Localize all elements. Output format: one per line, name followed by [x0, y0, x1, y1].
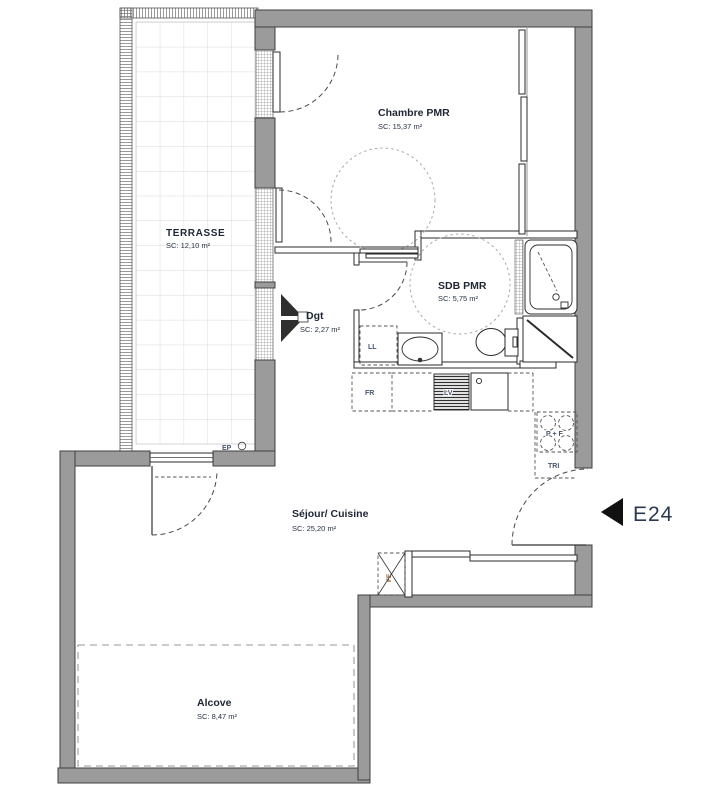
- bedroom-label: Chambre PMR: [378, 107, 450, 119]
- terrace-area: SC: 12,10 m²: [166, 241, 211, 250]
- living-area: SC: 25,20 m²: [292, 524, 337, 533]
- door-leaf-bedroom-2: [276, 188, 282, 242]
- alcove-label: Alcove: [197, 697, 232, 709]
- waste-sorting-label: TRI: [548, 463, 559, 470]
- kitchen-fixtures: [352, 373, 577, 478]
- left-triangle-marker-icon: [601, 498, 623, 526]
- door-swing-entry: [512, 469, 588, 545]
- hallway-area: SC: 2,27 m²: [300, 325, 341, 334]
- terrace-living-door: [150, 453, 217, 535]
- washbasin-tap-icon: [418, 358, 423, 363]
- floor-plan-drawing: E24 TERRASSE SC: 12,10 m² Chambre PMR SC…: [0, 0, 721, 800]
- bathroom-label: SDB PMR: [438, 280, 487, 292]
- ep-label: EP: [222, 445, 232, 452]
- sliding-door-rail: [360, 249, 418, 253]
- unit-label: E24: [633, 503, 673, 526]
- window-bedroom-2: [256, 188, 273, 282]
- floor-plan-canvas: E24 TERRASSE SC: 12,10 m² Chambre PMR SC…: [0, 0, 721, 800]
- washing-machine-box: [360, 326, 397, 365]
- hallway-label: Dgt: [306, 310, 324, 322]
- kitchen-sink: [471, 373, 508, 410]
- toilet-bowl: [476, 329, 506, 356]
- terrace-railing-top: [120, 8, 258, 18]
- bedroom-wardrobe: [519, 28, 527, 236]
- door-swing-terrace: [152, 470, 217, 535]
- sliding-door-leaf: [366, 254, 418, 258]
- terrace-label: TERRASSE: [166, 228, 225, 239]
- fridge-label: FR: [365, 390, 374, 397]
- door-leaf-bedroom-1: [273, 52, 280, 112]
- door-swing-bathroom: [359, 262, 407, 310]
- alcove-area: SC: 8,47 m²: [197, 712, 238, 721]
- bathtub: [525, 240, 577, 314]
- technical-duct-label: FE: [386, 573, 393, 582]
- dishwasher-label: LV: [444, 390, 453, 397]
- living-label: Séjour/ Cuisine: [292, 508, 369, 520]
- bathroom-area: SC: 5,75 m²: [438, 294, 479, 303]
- unit-marker: E24: [601, 498, 673, 526]
- hob-label: P + F: [546, 431, 564, 438]
- hob-burner-icon: [541, 416, 556, 431]
- washing-machine-label: LL: [368, 344, 377, 351]
- terrace-wall-openings: [256, 50, 338, 360]
- window-dgt: [256, 288, 273, 360]
- door-swing-bedroom-1: [280, 54, 338, 112]
- bedroom-area: SC: 15,37 m²: [378, 122, 423, 131]
- shower-screen: [515, 240, 523, 314]
- hob-burner-icon: [559, 416, 574, 431]
- entry-door: [512, 468, 592, 545]
- terrace-railing-left: [120, 8, 132, 451]
- door-swing-bedroom-2: [279, 190, 331, 242]
- window-bedroom-1: [256, 50, 273, 118]
- double-door-leaf-lower: [281, 320, 302, 342]
